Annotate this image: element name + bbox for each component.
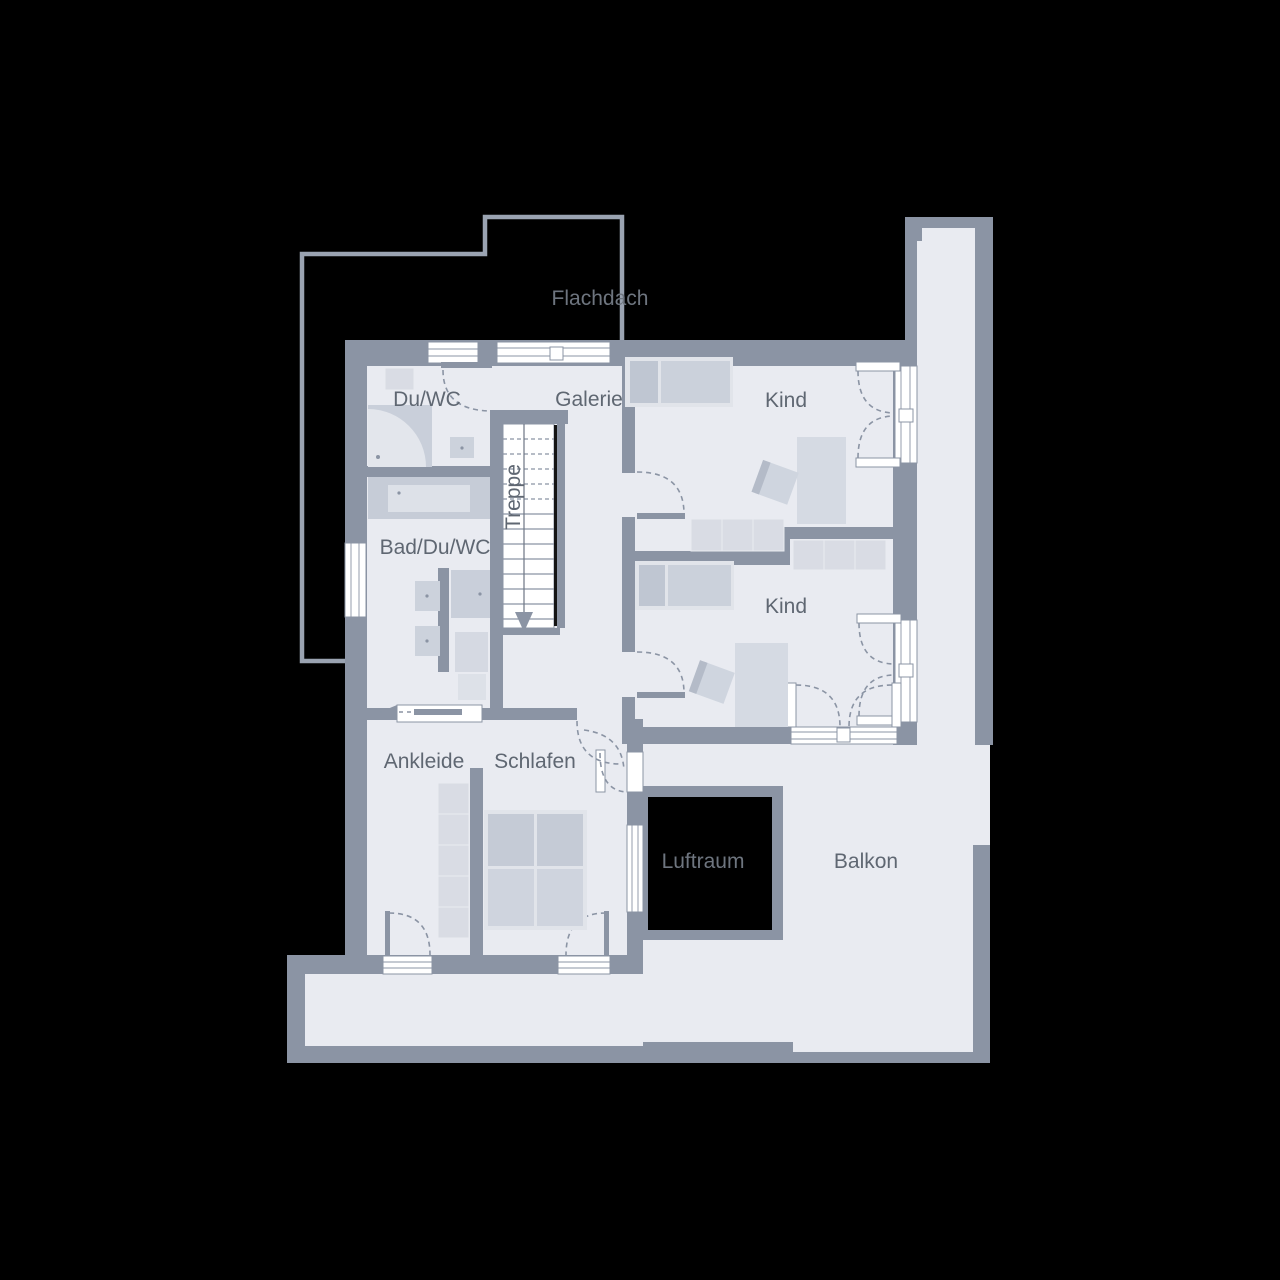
sliding-door-leaf — [414, 709, 462, 715]
kind1-desk — [797, 437, 846, 524]
ankleide-balcony-door — [383, 956, 432, 974]
bathtub-inner — [388, 485, 470, 512]
kind2-door-leaf-upper — [857, 614, 901, 623]
label-duwc: Du/WC — [393, 388, 461, 411]
window-top-a — [428, 342, 478, 363]
ankleide-wardrobe — [438, 783, 469, 938]
kind2-bed — [635, 561, 734, 610]
label-treppe: Treppe — [502, 464, 525, 530]
kind1-door-leaf-upper — [856, 362, 900, 371]
wall-kind-middle — [622, 517, 635, 652]
bottom-balcony-strip-floor — [305, 973, 650, 1048]
kind1-room-door-leaf — [637, 513, 685, 519]
schlafen-door-leaf — [604, 911, 609, 956]
kind1-bed — [625, 357, 733, 407]
wall-duwc-bottom — [345, 466, 503, 477]
bathtub-drain-icon — [397, 491, 400, 494]
wall-stair-left — [490, 410, 503, 708]
duwc-sink-drain-icon — [460, 446, 463, 449]
label-galerie: Galerie — [555, 388, 623, 411]
stair-handrail — [554, 425, 557, 626]
wall-stair-right — [557, 424, 565, 628]
kind1-wardrobe — [691, 519, 784, 551]
schlafen-luftraum-door — [627, 752, 643, 792]
schlafen-luftraum-window — [627, 825, 643, 912]
label-schlafen: Schlafen — [494, 750, 576, 773]
wall-stair-bottom — [496, 628, 560, 635]
kind1-door-handle-icon — [899, 409, 913, 422]
strip-top-notch — [922, 228, 975, 241]
bath-sink-2-drain-icon — [425, 639, 428, 642]
schlafen-balcony-door — [558, 956, 610, 974]
label-ankleide: Ankleide — [384, 750, 465, 773]
wall-balcony-bottom-mid — [643, 1042, 793, 1063]
wall-ankleide-divider — [470, 768, 483, 974]
kind2-south-door-leaf-left — [787, 683, 796, 727]
label-kind1: Kind — [765, 389, 807, 412]
kind2-desk — [735, 643, 788, 727]
wall-balcony-bottom-right — [793, 1052, 990, 1063]
kind2-wardrobe — [793, 540, 886, 570]
label-luftraum: Luftraum — [662, 850, 745, 873]
bath-shower-drain-icon — [478, 592, 481, 595]
kind1-door-leaf-lower — [856, 458, 900, 467]
duwc-toilet — [385, 368, 414, 390]
kind2-south-door-handle-icon — [837, 728, 850, 742]
label-flachdach: Flachdach — [552, 287, 649, 310]
label-kind2: Kind — [765, 595, 807, 618]
wall-stair-top — [490, 410, 568, 424]
kind2-door-handle-icon — [899, 664, 913, 677]
floor-plan-drawing: Flachdach Du/WC Galerie Kind Bad/Du/WC K… — [0, 0, 1280, 1280]
wall-strip-bottom-left — [287, 955, 305, 1048]
kind2-south-door-leaf-right — [892, 683, 901, 727]
wall-left-exterior — [345, 340, 367, 973]
wall-strip-right — [975, 217, 993, 745]
kind2-room-door-leaf — [637, 692, 685, 698]
bath-sink-1-drain-icon — [425, 594, 428, 597]
duwc-shower-drain-icon — [376, 455, 380, 459]
duwc-door-leaf — [441, 362, 492, 368]
bath-shower — [451, 570, 490, 618]
floor-plan-canvas: Flachdach Du/WC Galerie Kind Bad/Du/WC K… — [0, 0, 1280, 1280]
window-handle-icon — [550, 347, 563, 360]
bath-cabinet — [458, 674, 486, 700]
wall-kind1-kind2-b — [778, 527, 893, 539]
schlafen-double-bed — [484, 810, 587, 930]
wall-balcony-right — [973, 845, 990, 1063]
wall-balcony-bottom-left — [287, 1046, 643, 1063]
ankleide-door-leaf — [385, 911, 390, 956]
label-badduwc: Bad/Du/WC — [380, 536, 491, 559]
label-balkon: Balkon — [834, 850, 898, 873]
wall-strip-left — [905, 217, 917, 342]
window-left-bath — [345, 543, 366, 617]
wall-kind-lower — [622, 697, 635, 744]
bath-toilet — [455, 632, 488, 672]
